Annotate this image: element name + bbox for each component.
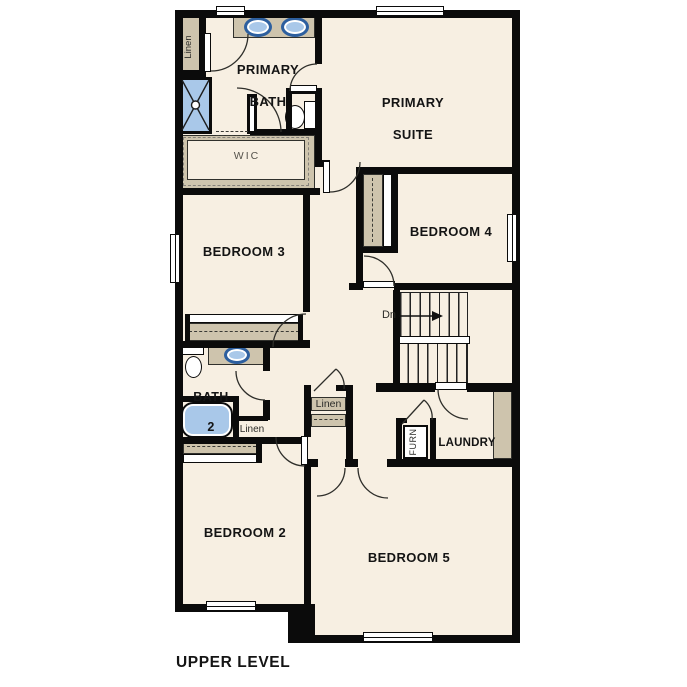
- wall: [396, 418, 402, 465]
- bedroom3-closet-front: [185, 314, 303, 323]
- bedroom2-closet-rod: [187, 446, 256, 447]
- label-line: BATH: [250, 94, 287, 109]
- room-label-primary-suite: PRIMARY SUITE: [343, 79, 483, 143]
- room-label-bedroom2: BEDROOM 2: [185, 525, 305, 541]
- wall: [304, 385, 311, 437]
- wall: [396, 418, 407, 423]
- wall: [179, 70, 206, 77]
- wall: [356, 167, 520, 174]
- sink-bath2: [224, 346, 250, 364]
- wic-opening-dashes: [216, 131, 248, 136]
- window: [363, 632, 433, 642]
- window-mullion: [175, 235, 176, 282]
- label-line: BATH: [193, 390, 228, 404]
- window-mullion: [364, 637, 432, 638]
- wall: [430, 418, 436, 465]
- closet-label-linen-hall: Linen: [311, 398, 346, 410]
- window-mullion: [217, 11, 244, 12]
- wall: [250, 129, 322, 135]
- wall: [356, 167, 363, 287]
- bedroom2-closet-front: [183, 454, 260, 463]
- room-label-primary-bath: PRIMARY BATH: [207, 46, 329, 110]
- page-title: UPPER LEVEL: [176, 654, 290, 672]
- stairs-landing-rail: [397, 336, 470, 344]
- closet-label-furnace: FURN: [408, 422, 422, 462]
- wall: [345, 459, 358, 467]
- wall: [387, 459, 520, 467]
- room-label-bath2: BATH 2: [181, 375, 241, 435]
- window: [206, 601, 256, 611]
- wall: [512, 10, 520, 643]
- room-label-laundry: LAUNDRY: [437, 435, 497, 451]
- bedroom4-closet-shelf: [363, 174, 383, 247]
- wall: [376, 383, 435, 392]
- wall: [467, 383, 512, 392]
- label-line: SUITE: [393, 127, 433, 142]
- wall: [393, 290, 400, 385]
- door-leaf: [435, 382, 467, 390]
- wall: [263, 341, 270, 371]
- hall-linen-rod: [314, 419, 343, 420]
- stairs-upper-run: [400, 292, 468, 336]
- sink-primary-1: [244, 17, 272, 37]
- floor-plan: PRIMARY BATH PRIMARY SUITE WIC BEDROOM 3…: [0, 0, 687, 687]
- door-leaf: [363, 281, 395, 288]
- closet-label-linen-upper-left: Linen: [183, 27, 197, 67]
- wall: [175, 341, 310, 348]
- wall: [185, 314, 190, 341]
- closet-label-linen-bath: Linen: [237, 424, 267, 435]
- sink-primary-2: [281, 17, 309, 37]
- window-mullion: [207, 606, 255, 607]
- wall: [298, 314, 303, 341]
- room-label-bedroom5: BEDROOM 5: [349, 550, 469, 566]
- wall: [304, 464, 311, 604]
- door-leaf: [301, 436, 308, 465]
- wall: [349, 283, 363, 290]
- wall: [356, 247, 398, 253]
- room-label-bedroom4: BEDROOM 4: [391, 224, 511, 240]
- wall: [394, 283, 520, 290]
- label-line: 2: [207, 420, 214, 434]
- room-label-wic: WIC: [222, 150, 272, 162]
- window: [170, 234, 180, 283]
- label-line: PRIMARY: [237, 62, 299, 77]
- bedroom3-closet-rod: [189, 331, 299, 332]
- wall: [175, 10, 183, 612]
- wall: [346, 385, 353, 465]
- bedroom4-closet-rod: [372, 178, 373, 242]
- bedroom3-closet-shelf: [185, 323, 303, 341]
- stairs-lower-run: [398, 344, 468, 384]
- stairs-down-label: Dn: [379, 309, 399, 321]
- wall: [175, 437, 308, 444]
- hall-linen-shelf2: [311, 414, 346, 427]
- wall: [336, 385, 353, 391]
- label-line: PRIMARY: [382, 95, 444, 110]
- room-label-bedroom3: BEDROOM 3: [184, 244, 304, 260]
- window-mullion: [377, 11, 443, 12]
- window-mullion: [512, 215, 513, 261]
- wall: [256, 437, 262, 463]
- window: [376, 6, 444, 16]
- wall: [303, 190, 310, 312]
- door-leaf: [323, 161, 330, 193]
- window: [216, 6, 245, 16]
- wall: [175, 188, 320, 195]
